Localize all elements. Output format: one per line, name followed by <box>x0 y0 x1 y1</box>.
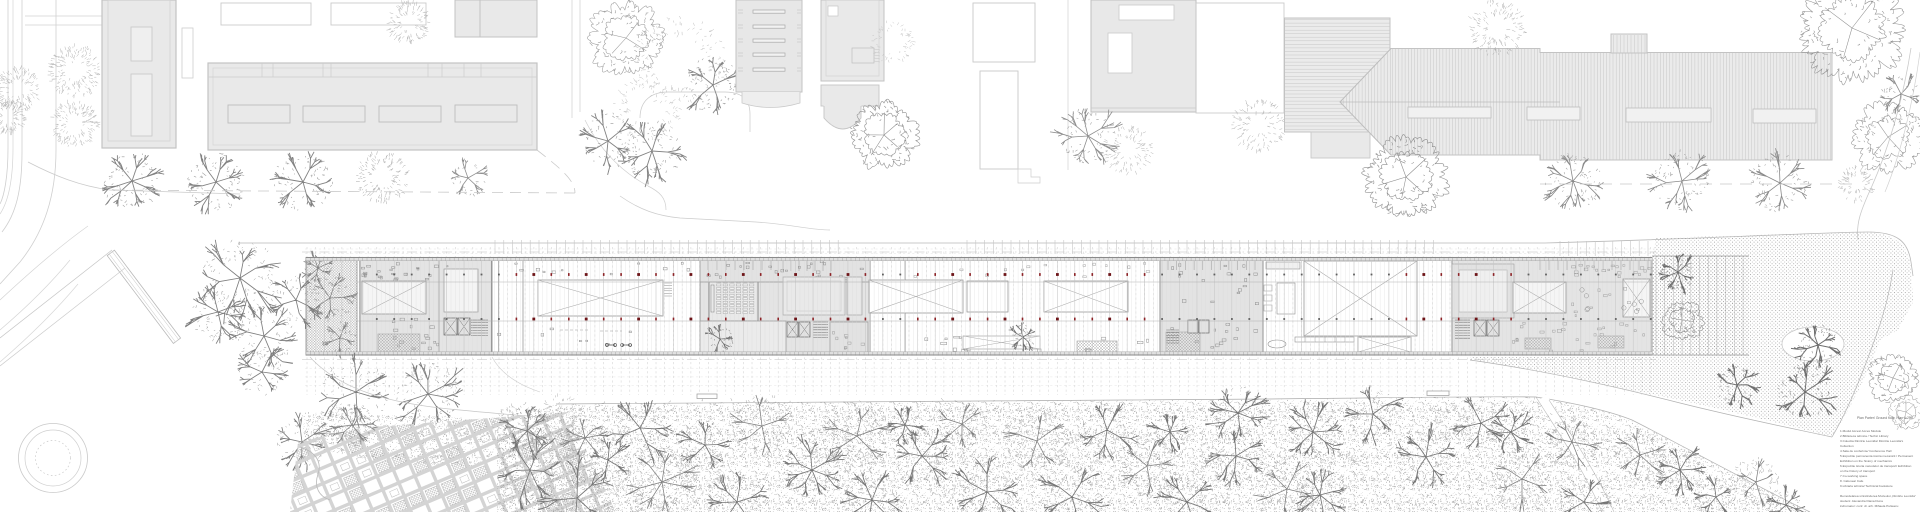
svg-text:3.Colectia Dimitrie Leonida/: 3.Colectia Dimitrie Leonida/ Dimitrie Le… <box>1840 439 1904 443</box>
svg-text:9.Libraria tehnica/ Technical: 9.Libraria tehnica/ Technical bookstore <box>1840 484 1893 488</box>
svg-text:Collection: Collection <box>1840 444 1854 448</box>
svg-text:Exhibition on the history of m: Exhibition on the history of mechanics <box>1840 459 1892 463</box>
svg-text:4.Sala de conferinte/ Conferen: 4.Sala de conferinte/ Conference Hall <box>1840 449 1892 453</box>
svg-text:5.Expozitie permanenta istoria: 5.Expozitie permanenta istoria mecanicii… <box>1840 454 1913 458</box>
svg-text:on the history of transport: on the history of transport <box>1840 469 1875 473</box>
svg-text:6.Expozitie istoria metodelo: 6.Expozitie istoria metodelor de transpo… <box>1840 464 1912 468</box>
svg-text:1.Modul Acces/ Acces Module: 1.Modul Acces/ Acces Module <box>1840 429 1881 433</box>
svg-text:Remodelarea si Extinderea Muze: Remodelarea si Extinderea Muzeului „Dimi… <box>1840 494 1916 498</box>
svg-text:2.Biblioteca tehnica / Techic: 2.Biblioteca tehnica / Techic Library <box>1840 434 1889 438</box>
svg-text:indrumator: conf. dr. arh. Mih: indrumator: conf. dr. arh. Mihaela Pelte… <box>1840 504 1899 508</box>
svg-text:8. Cafenea/ Cafe: 8. Cafenea/ Cafe <box>1840 479 1864 483</box>
svg-text:Plan Parter/ Ground floor. Pla: Plan Parter/ Ground floor. Plan 1:200 <box>1857 416 1913 420</box>
svg-text:7.Co-working space: 7.Co-working space <box>1840 474 1868 478</box>
svg-text:student: Alexandra Diana Duna: student: Alexandra Diana Duna <box>1840 499 1883 503</box>
